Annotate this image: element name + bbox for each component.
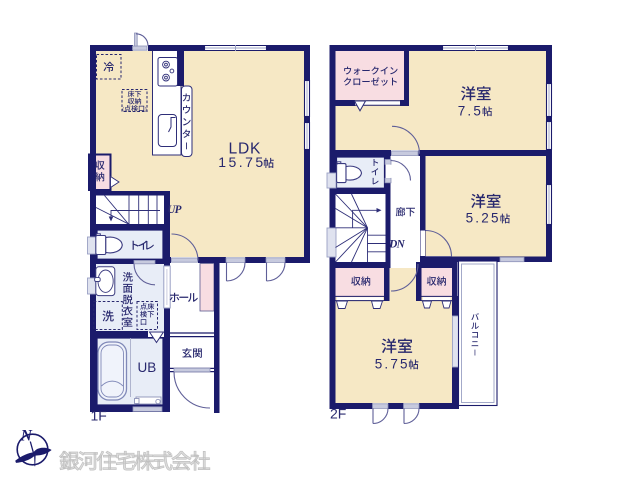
svg-text:7.5: 7.5 — [458, 103, 483, 118]
svg-text:5.25: 5.25 — [466, 211, 501, 226]
svg-text:5.75: 5.75 — [375, 356, 410, 371]
svg-text:UP: UP — [167, 204, 181, 216]
svg-text:DN: DN — [388, 239, 405, 251]
svg-text:15.75: 15.75 — [218, 154, 266, 170]
svg-text:1F: 1F — [91, 408, 107, 424]
svg-text:2F: 2F — [330, 406, 346, 422]
svg-text:UB: UB — [138, 360, 157, 375]
